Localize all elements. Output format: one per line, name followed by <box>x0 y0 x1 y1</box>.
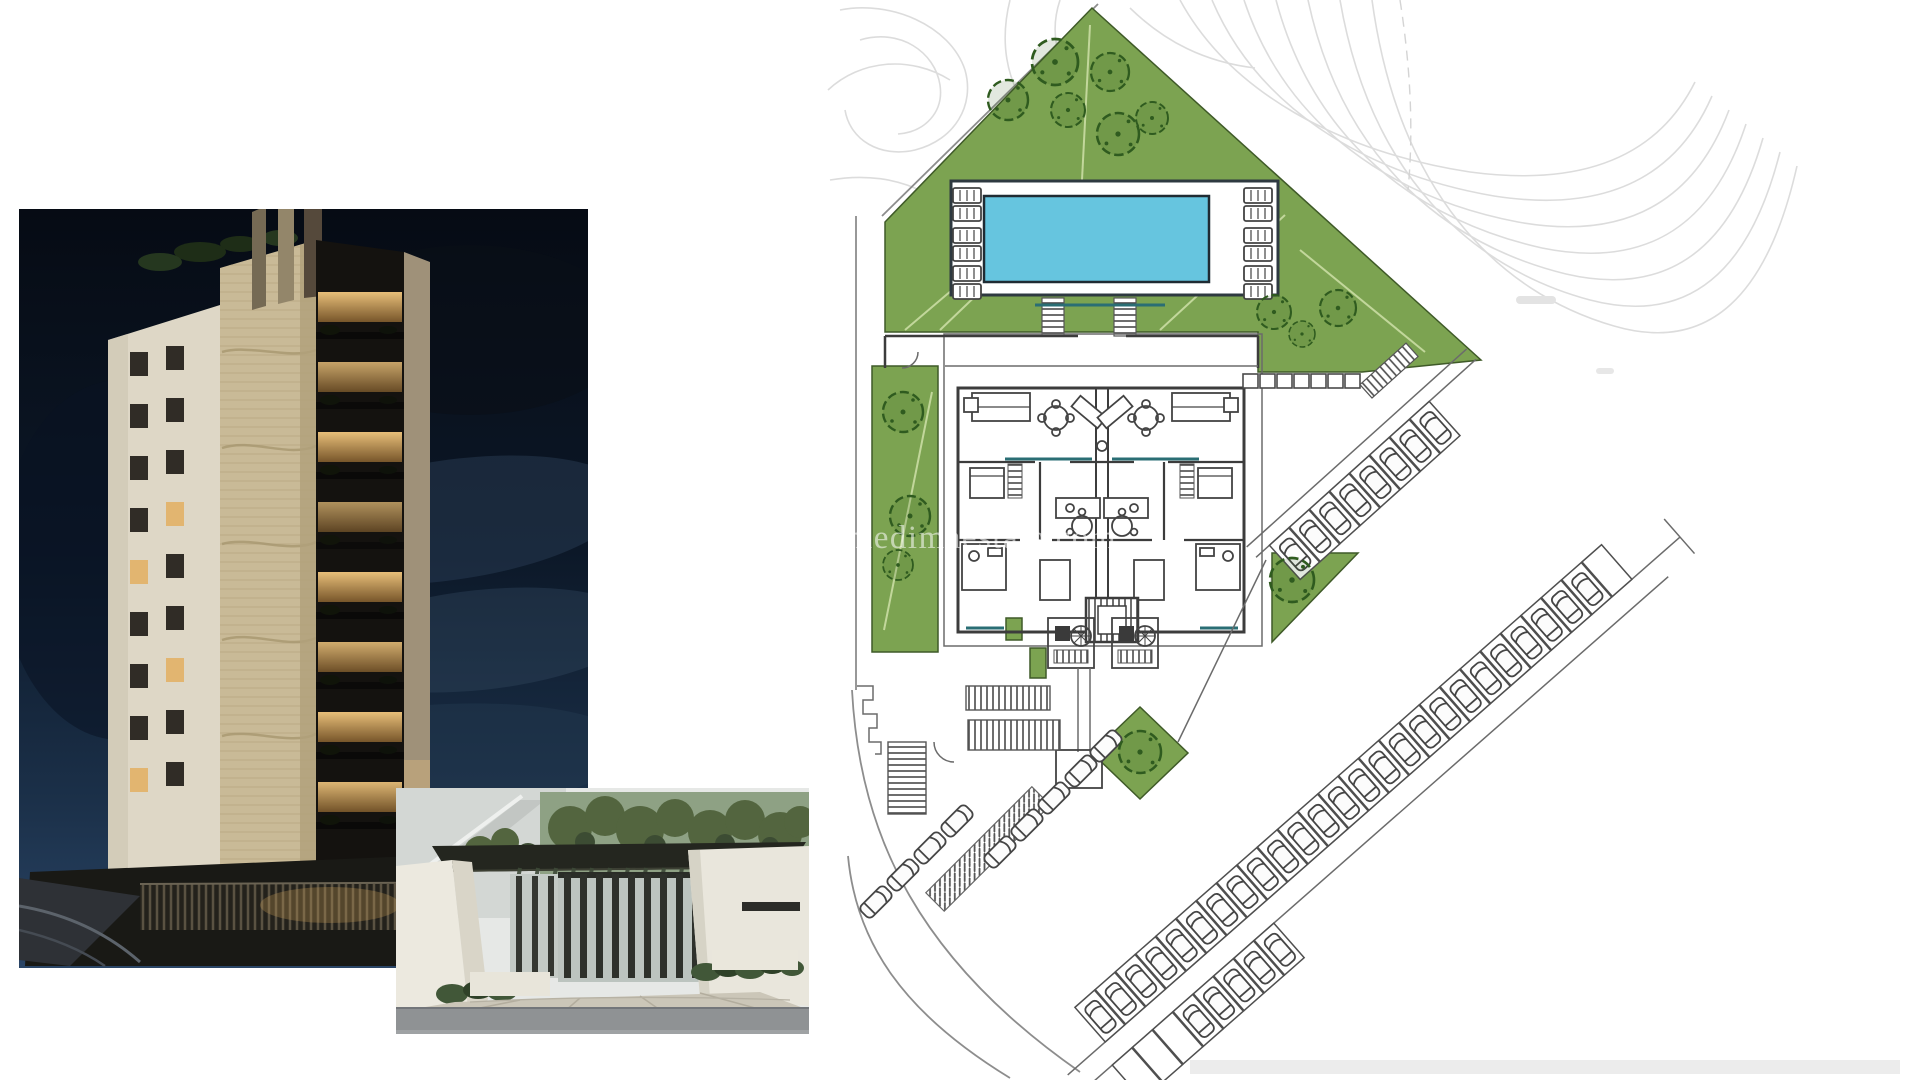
screenshot-root: www.medimaestate.com <box>0 0 1920 1080</box>
tower-left-wing <box>108 305 220 878</box>
road-edge <box>1190 1060 1900 1074</box>
entrance-gate-photo <box>396 788 816 1034</box>
slat-gate <box>510 872 702 982</box>
site-plan <box>828 0 1900 1080</box>
tower-balconies <box>316 240 430 876</box>
entrance-steps <box>857 686 1060 911</box>
roof-fins <box>252 174 322 310</box>
tower-central-facade <box>220 240 316 876</box>
building-floor-plan <box>885 334 1262 646</box>
letterbox-slot <box>742 902 800 911</box>
composite-canvas <box>0 0 1920 1080</box>
garden-patch-small <box>1030 648 1046 678</box>
swimming-pool <box>984 196 1209 282</box>
garden-patch-small2 <box>1006 618 1022 640</box>
